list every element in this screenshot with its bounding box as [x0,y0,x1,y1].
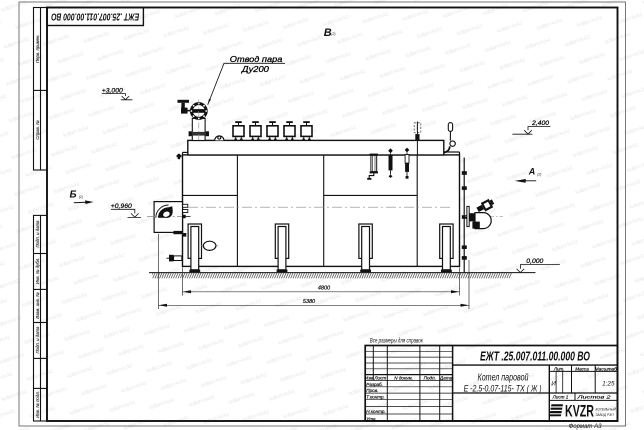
svg-text:КОТЕЛЬНЫЙ: КОТЕЛЬНЫЙ [596,406,617,411]
svg-text:Подп. и дата: Подп. и дата [35,326,40,354]
svg-text:Ду200: Ду200 [241,64,269,74]
svg-text:Лит.: Лит. [553,367,565,372]
svg-text:Формат А3: Формат А3 [569,424,603,430]
svg-text:А: А [528,167,536,177]
svg-text:Инв. № дубл.: Инв. № дубл. [35,258,40,284]
svg-text:(2): (2) [79,195,83,199]
svg-text:Разраб.: Разраб. [366,382,383,387]
svg-text:Пров.: Пров. [366,388,378,393]
svg-text:KVZR: KVZR [565,403,594,421]
svg-text:Подп. и дата: Подп. и дата [35,220,40,248]
svg-text:Н.контр.: Н.контр. [366,409,385,414]
svg-text:Изм: Изм [365,375,374,380]
svg-text:И: И [551,380,556,387]
svg-text:Листов 2: Листов 2 [576,395,611,400]
svg-text:Лист 1: Лист 1 [552,395,569,400]
svg-text:Т.контр.: Т.контр. [366,395,385,400]
svg-text:(2): (2) [331,32,335,36]
svg-text:Подп.: Подп. [424,375,436,380]
svg-text:1:25: 1:25 [602,380,615,387]
svg-text:0,000: 0,000 [526,258,543,265]
svg-text:Перв. примен.: Перв. примен. [35,34,40,63]
svg-text:Котел паровой: Котел паровой [478,373,529,384]
svg-text:Масса: Масса [575,367,589,372]
svg-text:ЗАВОД РЭП: ЗАВОД РЭП [596,412,614,417]
svg-text:N докум.: N докум. [394,375,413,380]
svg-text:Справ. №: Справ. № [35,120,40,140]
svg-text:Инв. № подл.: Инв. № подл. [35,391,40,418]
svg-text:2,400: 2,400 [531,120,549,127]
svg-text:Лист: Лист [373,375,386,380]
svg-text:+3,000: +3,000 [102,87,123,94]
svg-text:Утв.: Утв. [366,416,376,421]
svg-text:(2): (2) [537,172,541,176]
svg-text:Масштаб: Масштаб [595,367,617,372]
svg-text:ЕЖТ .25.007.011.00.000 ВО: ЕЖТ .25.007.011.00.000 ВО [51,11,139,22]
svg-text:ЕЖТ .25.007.011.00.000 ВО: ЕЖТ .25.007.011.00.000 ВО [480,349,590,364]
svg-text:4800: 4800 [318,285,331,291]
svg-text:Все размеры для справок: Все размеры для справок [370,338,424,344]
svg-text:Взам. инв. №: Взам. инв. № [35,292,40,319]
svg-text:Б: Б [70,190,77,201]
svg-text:Отвод пара: Отвод пара [230,54,283,64]
svg-text:Дата: Дата [439,375,453,380]
svg-text:Е -2,5-0,07-115- ТХ ( Ж ): Е -2,5-0,07-115- ТХ ( Ж ) [464,384,542,394]
svg-text:5380: 5380 [303,299,316,305]
svg-text:+0,960: +0,960 [111,203,132,210]
